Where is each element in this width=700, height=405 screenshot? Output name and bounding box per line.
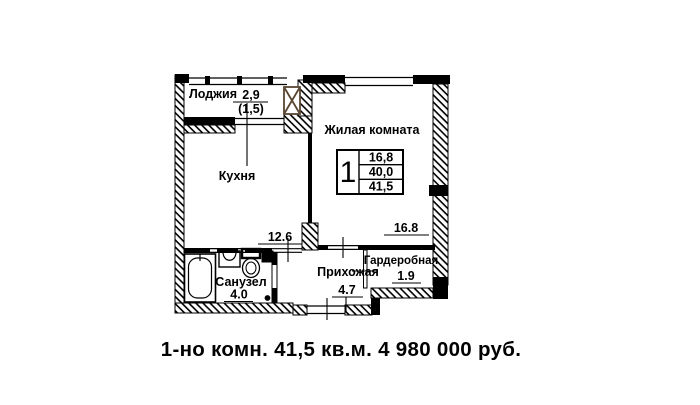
- hallway-label: Прихожая: [317, 265, 379, 279]
- loggia-area: 2,9: [242, 88, 259, 102]
- apartment-stamp: 1 16,8 40,0 41,5: [337, 150, 403, 194]
- door-hinge-dot: [265, 296, 270, 301]
- price-caption: 1-но комн. 41,5 кв.м. 4 980 000 руб.: [161, 338, 521, 361]
- wardrobe-area: 1.9: [397, 269, 414, 283]
- kitchen-area: 12.6: [268, 230, 292, 244]
- stamp-living-area: 16,8: [369, 151, 393, 165]
- stamp-rooms-count: 1: [340, 156, 357, 189]
- living-room-label: Жилая комната: [323, 123, 420, 137]
- loggia-area-reduced: (1,5): [238, 102, 264, 116]
- wardrobe-label: Гардеробная: [364, 255, 438, 267]
- living-room-area: 16.8: [394, 221, 418, 235]
- bathroom-area: 4.0: [230, 288, 247, 302]
- loggia-label: Лоджия: [189, 87, 237, 101]
- vent-shaft-icon: [284, 87, 300, 114]
- hallway-area: 4.7: [338, 283, 355, 297]
- bathtub-icon: [185, 254, 216, 302]
- toilet-icon: [242, 249, 260, 278]
- stamp-total-area: 41,5: [369, 180, 393, 194]
- floor-plan-drawing: 1 16,8 40,0 41,5 Лоджия 2,9 (1,5) Кухня …: [0, 0, 700, 405]
- floorplan-page: 1 16,8 40,0 41,5 Лоджия 2,9 (1,5) Кухня …: [0, 0, 700, 405]
- washer-icon: [262, 251, 273, 262]
- kitchen-label: Кухня: [219, 169, 256, 183]
- stamp-area-no-balcony: 40,0: [369, 165, 393, 179]
- sink-icon: [219, 251, 240, 267]
